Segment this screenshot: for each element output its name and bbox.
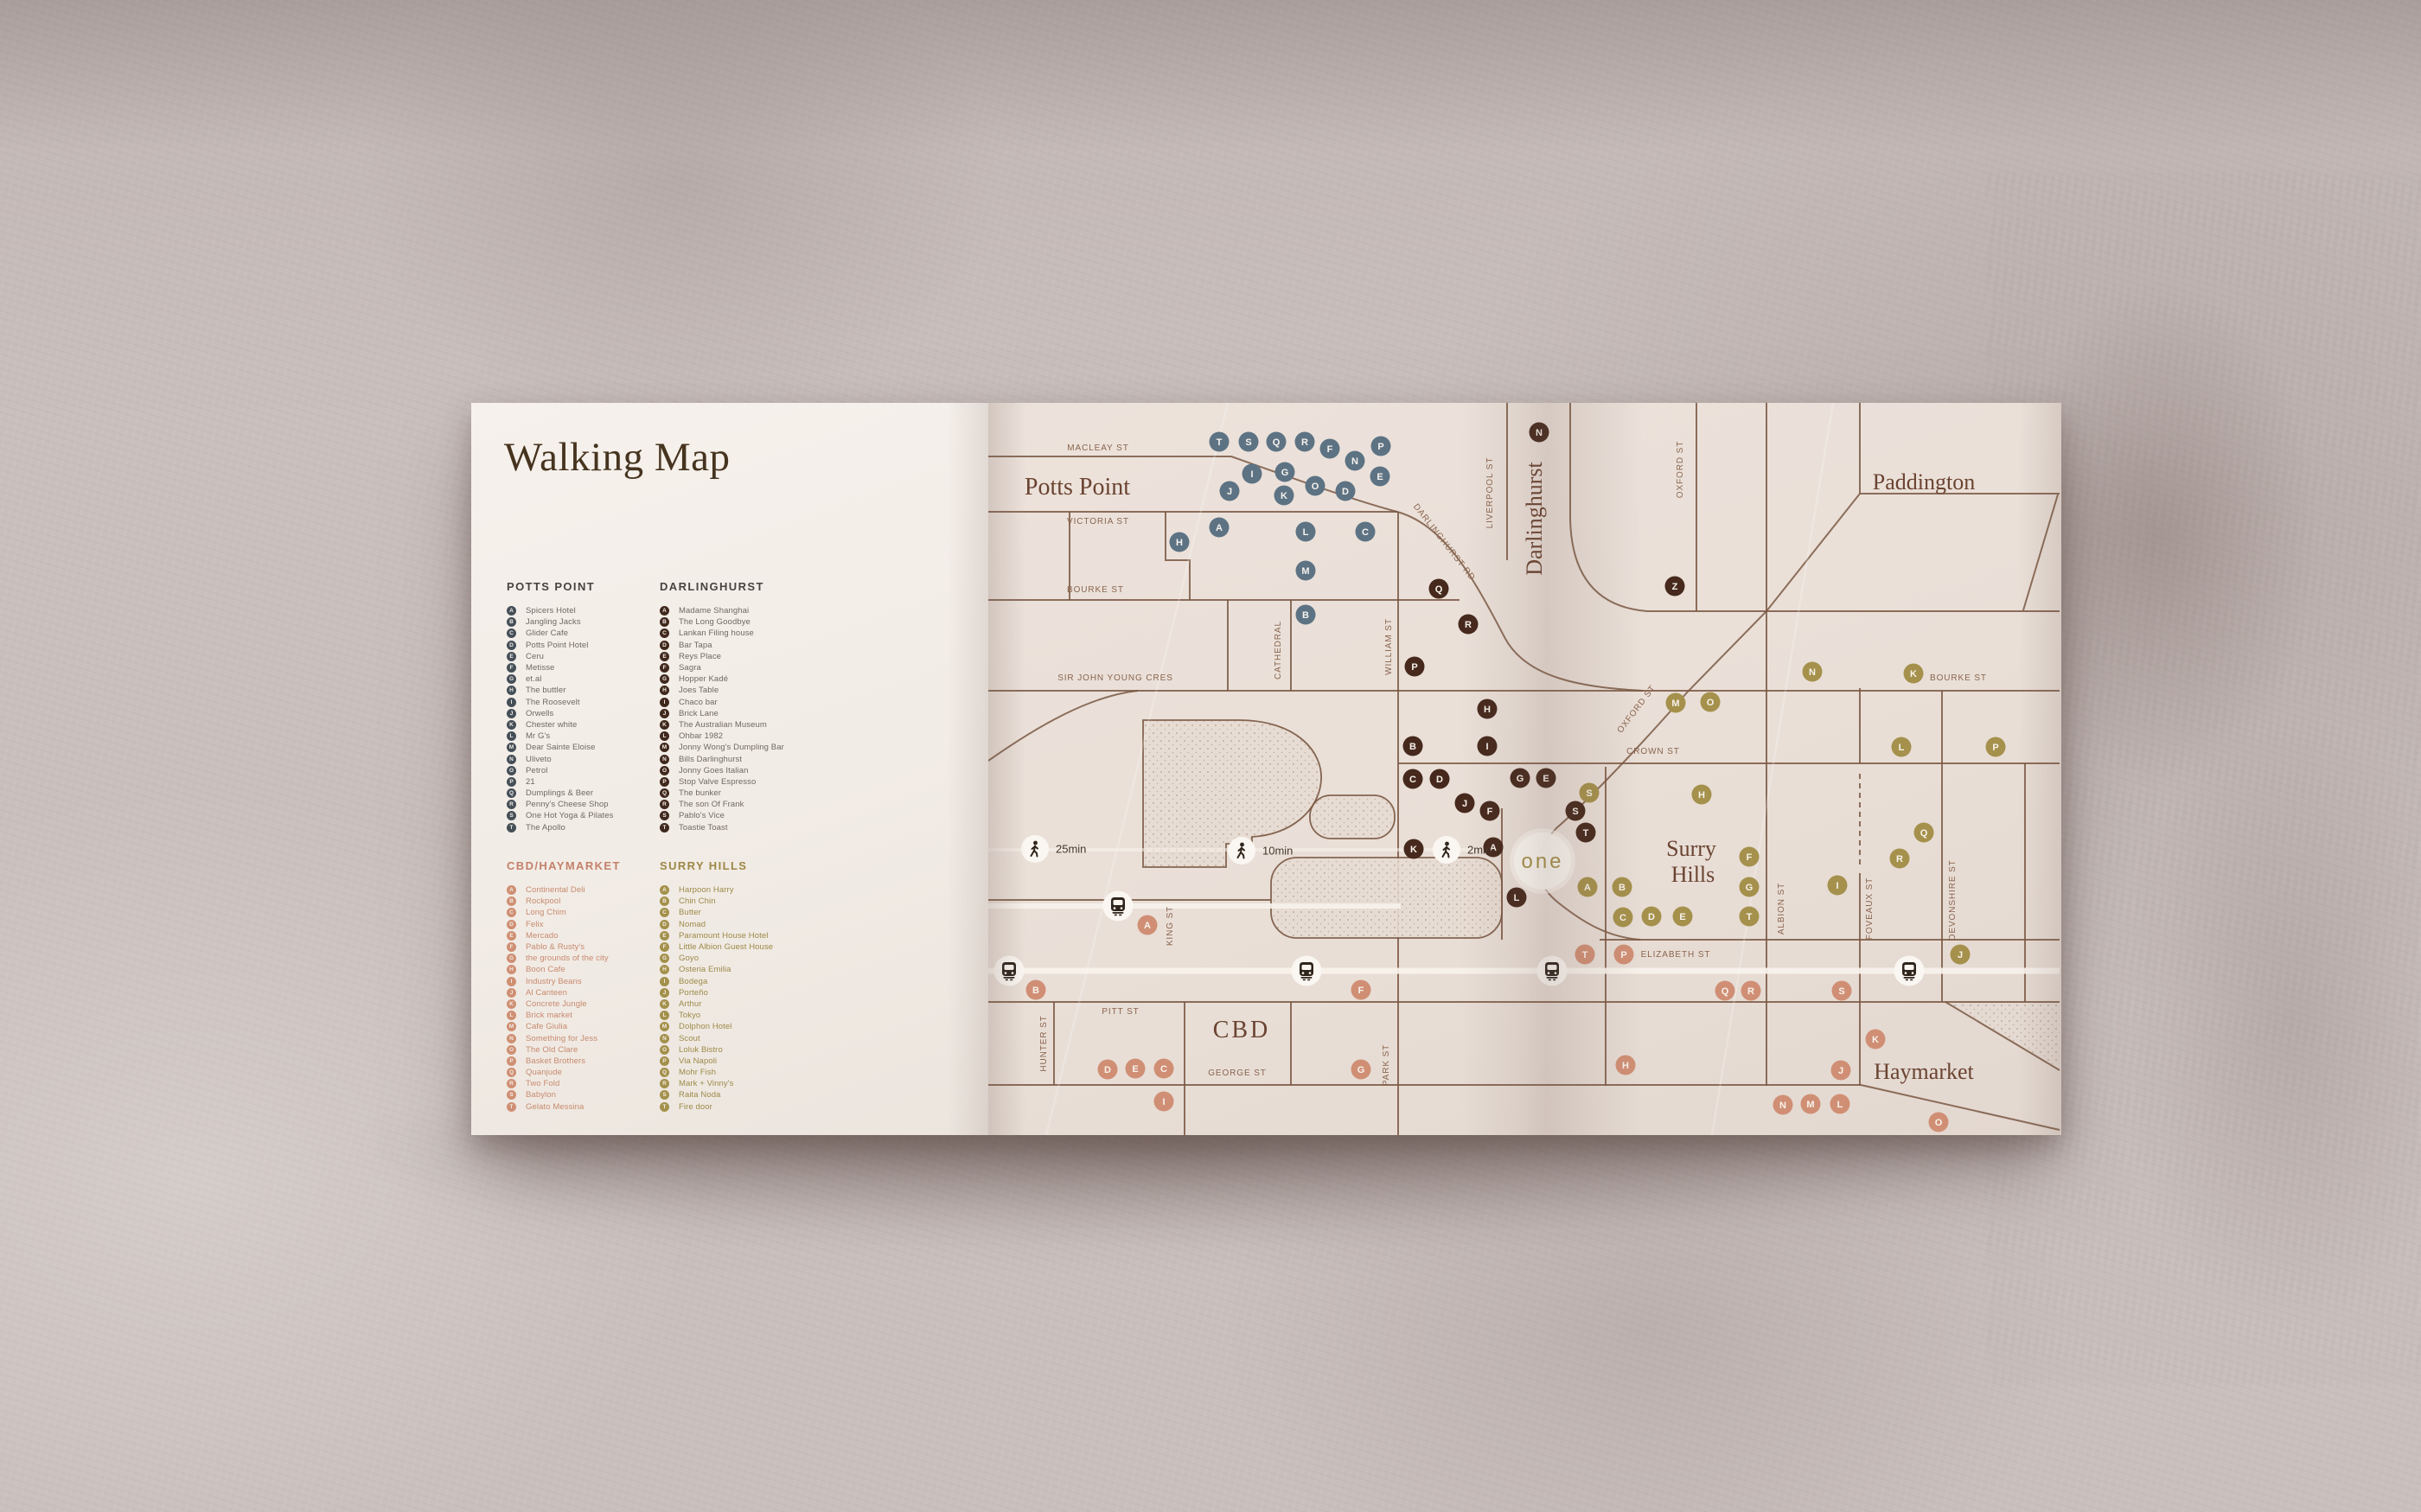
street-label: BOURKE ST — [1930, 673, 1987, 683]
legend-badge: Q — [660, 788, 669, 798]
svg-text:K: K — [1910, 669, 1917, 679]
svg-text:K: K — [1410, 845, 1417, 855]
legend-name: Continental Deli — [526, 885, 585, 895]
legend-badge: L — [507, 731, 516, 741]
legend-badge: T — [660, 1102, 669, 1112]
svg-text:D: D — [1342, 487, 1349, 497]
legend-badge: G — [660, 674, 669, 684]
legend-badge: O — [507, 1045, 516, 1055]
legend-name: Spicers Hotel — [526, 606, 576, 616]
legend-badge: F — [507, 942, 516, 952]
legend-badge: P — [660, 777, 669, 787]
legend-section-surry-hills: SURRY HILLSAHarpoon HarryBChin ChinCButt… — [660, 859, 814, 1113]
svg-text:N: N — [1779, 1101, 1786, 1111]
marker-cbd_haymarket-H: H — [1616, 1056, 1636, 1075]
legend-item: HThe buttler — [507, 685, 661, 696]
legend-item: EMercado — [507, 930, 661, 941]
marker-potts_point-N: N — [1345, 451, 1365, 471]
legend-item: HOsteria Emilia — [660, 964, 814, 975]
legend-name: Jangling Jacks — [526, 617, 581, 627]
legend-item: NUliveto — [507, 753, 661, 764]
legend-badge: D — [507, 641, 516, 650]
region-label: CBD — [1213, 1017, 1271, 1043]
legend-item: ECeru — [507, 651, 661, 662]
legend-item: IIndustry Beans — [507, 976, 661, 987]
svg-text:B: B — [1302, 610, 1309, 621]
marker-potts_point-L: L — [1296, 522, 1316, 542]
marker-potts_point-D: D — [1336, 482, 1356, 501]
legend-item: JAl Canteen — [507, 987, 661, 998]
svg-text:D: D — [1104, 1065, 1111, 1075]
one-logo-text: one — [1521, 850, 1563, 873]
legend-item: AMadame Shanghai — [660, 605, 814, 616]
legend-name: Industry Beans — [526, 977, 582, 986]
legend-badge: A — [660, 606, 669, 616]
legend-badge: Q — [507, 1068, 516, 1077]
street-label: GEORGE ST — [1208, 1069, 1267, 1078]
marker-cbd_haymarket-T: T — [1575, 945, 1595, 965]
legend-name: Brick Lane — [679, 709, 719, 718]
svg-text:Z: Z — [1672, 582, 1678, 592]
legend-name: Mercado — [526, 931, 559, 941]
legend-badge: N — [507, 755, 516, 764]
marker-darlinghurst-H: H — [1478, 699, 1498, 719]
legend-name: 21 — [526, 777, 535, 787]
legend-item: FMetisse — [507, 662, 661, 673]
marker-surry_hills-S: S — [1580, 783, 1600, 803]
legend-name: Toastie Toast — [679, 823, 728, 833]
legend-name: Harpoon Harry — [679, 885, 734, 895]
svg-text:L: L — [1514, 893, 1520, 903]
legend-badge: K — [507, 999, 516, 1009]
legend-badge: T — [507, 823, 516, 833]
svg-text:Q: Q — [1722, 986, 1729, 997]
street-label: DEVONSHIRE ST — [1948, 859, 1958, 940]
marker-potts_point-H: H — [1170, 533, 1190, 552]
legend-item: IThe Roosevelt — [507, 697, 661, 708]
legend-item: SBabylon — [507, 1089, 661, 1101]
legend-name: Metisse — [526, 663, 554, 673]
marker-cbd_haymarket-S: S — [1832, 981, 1852, 1001]
legend-name: Chaco bar — [679, 698, 718, 707]
legend-item: JBrick Lane — [660, 708, 814, 719]
marker-darlinghurst-I: I — [1478, 737, 1498, 756]
legend-item: RTwo Fold — [507, 1078, 661, 1089]
marker-cbd_haymarket-Q: Q — [1715, 981, 1735, 1001]
legend-badge: B — [507, 896, 516, 906]
marker-surry_hills-O: O — [1701, 692, 1721, 712]
legend-name: Tokyo — [679, 1011, 700, 1020]
legend-name: Madame Shanghai — [679, 606, 749, 616]
legend-badge: E — [660, 652, 669, 661]
legend-item: TThe Apollo — [507, 822, 661, 833]
svg-text:K: K — [1872, 1035, 1879, 1045]
marker-surry_hills-A: A — [1578, 877, 1598, 897]
legend-name: Mohr Fish — [679, 1068, 716, 1077]
svg-text:E: E — [1679, 912, 1685, 922]
street-label: LIVERPOOL ST — [1485, 457, 1495, 529]
marker-potts_point-J: J — [1220, 482, 1240, 501]
svg-text:O: O — [1312, 482, 1319, 492]
svg-text:C: C — [1619, 913, 1626, 923]
legend-name: Mr G's — [526, 731, 550, 741]
legend-name: Dear Sainte Eloise — [526, 743, 595, 752]
legend-badge: A — [507, 885, 516, 895]
legend-item: BRockpool — [507, 896, 661, 907]
legend-badge: M — [507, 1022, 516, 1031]
svg-text:F: F — [1358, 986, 1364, 996]
svg-text:L: L — [1303, 527, 1309, 538]
svg-text:T: T — [1747, 912, 1753, 922]
legend-badge: C — [660, 628, 669, 638]
legend-name: Pablo's Vice — [679, 811, 725, 820]
legend-badge: H — [507, 965, 516, 974]
legend-badge: B — [507, 617, 516, 627]
marker-cbd_haymarket-D: D — [1098, 1060, 1118, 1080]
parks — [1143, 720, 2060, 1069]
legend-item: KArthur — [660, 998, 814, 1010]
legend-item: JPorteño — [660, 987, 814, 998]
svg-text:C: C — [1160, 1064, 1167, 1075]
svg-text:D: D — [1648, 912, 1655, 922]
legend-badge: I — [660, 977, 669, 986]
wall-shadow-bottom — [259, 1124, 2075, 1349]
street-label: PARK ST — [1382, 1044, 1391, 1086]
legend-item: EParamount House Hotel — [660, 930, 814, 941]
marker-darlinghurst-Q: Q — [1429, 579, 1449, 599]
marker-darlinghurst-T: T — [1576, 823, 1596, 843]
marker-cbd_haymarket-I: I — [1154, 1092, 1174, 1112]
legend-item: ASpicers Hotel — [507, 605, 661, 616]
legend-badge: J — [507, 988, 516, 998]
marker-cbd_haymarket-R: R — [1741, 981, 1761, 1001]
svg-text:G: G — [1517, 774, 1524, 784]
legend-name: Bodega — [679, 977, 707, 986]
legend-name: Felix — [526, 920, 544, 929]
legend-badge: D — [660, 920, 669, 929]
legend-item: RPenny's Cheese Shop — [507, 799, 661, 810]
legend-item: BThe Long Goodbye — [660, 616, 814, 628]
train-station-icon — [1894, 956, 1925, 986]
street-label: OXFORD ST — [1676, 441, 1685, 498]
legend-item: IChaco bar — [660, 697, 814, 708]
legend-name: Hopper Kadé — [679, 674, 728, 684]
marker-surry_hills-R: R — [1890, 849, 1910, 869]
legend-name: Petrol — [526, 766, 547, 775]
legend-badge: C — [660, 908, 669, 917]
marker-surry_hills-I: I — [1828, 876, 1848, 896]
svg-text:P: P — [1377, 442, 1383, 452]
region-label: Darlinghurst — [1522, 462, 1547, 576]
legend-item: DPotts Point Hotel — [507, 640, 661, 651]
svg-text:I: I — [1162, 1097, 1165, 1107]
legend-item: AContinental Deli — [507, 884, 661, 896]
legend-badge: A — [507, 606, 516, 616]
svg-text:I: I — [1836, 881, 1838, 891]
legend-item: PBasket Brothers — [507, 1056, 661, 1067]
svg-text:L: L — [1837, 1100, 1843, 1110]
legend-name: The Apollo — [526, 823, 565, 833]
legend-badge: G — [660, 954, 669, 963]
svg-text:J: J — [1462, 799, 1467, 809]
marker-potts_point-R: R — [1295, 432, 1315, 452]
legend-name: Raita Noda — [679, 1090, 721, 1100]
marker-darlinghurst-P: P — [1405, 657, 1425, 677]
svg-text:R: R — [1747, 986, 1754, 997]
legend-badge: M — [660, 1022, 669, 1031]
legend-badge: H — [507, 686, 516, 695]
marker-surry_hills-B: B — [1613, 877, 1632, 897]
legend-item: P21 — [507, 776, 661, 788]
legend-badge: S — [660, 1090, 669, 1100]
svg-text:E: E — [1377, 472, 1383, 482]
legend-badge: M — [660, 743, 669, 752]
marker-darlinghurst-J: J — [1455, 794, 1475, 813]
legend-badge: N — [507, 1034, 516, 1043]
legend-badge: T — [660, 823, 669, 833]
legend-name: The bunker — [679, 788, 721, 798]
map-panel: Potts PointDarlinghurstPaddingtonSurryHi… — [988, 403, 2061, 1135]
legend-name: Pablo & Rusty's — [526, 942, 584, 952]
marker-cbd_haymarket-J: J — [1831, 1061, 1851, 1081]
legend-item: DNomad — [660, 919, 814, 930]
legend-name: Boon Cafe — [526, 965, 565, 974]
legend-badge: K — [660, 999, 669, 1009]
legend-badge: Q — [660, 1068, 669, 1077]
svg-text:F: F — [1487, 807, 1493, 817]
legend-item: OJonny Goes Italian — [660, 765, 814, 776]
svg-text:T: T — [1217, 437, 1223, 448]
marker-surry_hills-F: F — [1740, 847, 1760, 867]
legend-badge: C — [507, 908, 516, 917]
legend-item: LTokyo — [660, 1010, 814, 1021]
marker-surry_hills-D: D — [1642, 907, 1662, 927]
marker-cbd_haymarket-F: F — [1351, 980, 1371, 1000]
legend-badge: L — [660, 1011, 669, 1020]
svg-text:G: G — [1281, 468, 1289, 478]
marker-darlinghurst-G: G — [1511, 769, 1530, 788]
legend-name: Via Napoli — [679, 1056, 717, 1066]
legend-item: KThe Australian Museum — [660, 719, 814, 730]
legend-name: Concrete Jungle — [526, 999, 587, 1009]
marker-potts_point-K: K — [1274, 486, 1294, 506]
marker-surry_hills-C: C — [1613, 908, 1633, 928]
legend-badge: P — [507, 1056, 516, 1066]
svg-text:H: H — [1484, 705, 1491, 715]
legend-name: The Australian Museum — [679, 720, 767, 730]
svg-text:G: G — [1746, 883, 1753, 893]
legend-item: QThe bunker — [660, 788, 814, 799]
svg-text:A: A — [1216, 523, 1223, 533]
legend-name: Joes Table — [679, 686, 719, 695]
legend-name: Goyo — [679, 954, 699, 963]
train-station-icon — [994, 956, 1025, 986]
legend-name: Penny's Cheese Shop — [526, 800, 609, 809]
marker-darlinghurst-N: N — [1530, 423, 1549, 443]
legend-badge: D — [660, 641, 669, 650]
marker-potts_point-O: O — [1306, 476, 1325, 496]
legend-item: TToastie Toast — [660, 822, 814, 833]
legend-badge: H — [660, 965, 669, 974]
svg-text:F: F — [1747, 852, 1753, 863]
legend-name: Jonny Wong's Dumpling Bar — [679, 743, 784, 752]
marker-darlinghurst-B: B — [1403, 737, 1423, 756]
legend-badge: J — [660, 988, 669, 998]
svg-text:S: S — [1838, 986, 1844, 997]
legend-item: QMohr Fish — [660, 1067, 814, 1078]
svg-text:P: P — [1411, 662, 1417, 673]
street-label: WILLIAM ST — [1384, 618, 1394, 675]
legend-name: Little Albion Guest House — [679, 942, 773, 952]
svg-text:Q: Q — [1920, 828, 1928, 839]
marker-surry_hills-J: J — [1951, 945, 1971, 965]
legend-name: Bar Tapa — [679, 641, 712, 650]
legend-badge: E — [507, 931, 516, 941]
legend-badge: N — [660, 1034, 669, 1043]
legend-badge: H — [660, 686, 669, 695]
marker-surry_hills-G: G — [1740, 877, 1760, 897]
svg-text:J: J — [1958, 950, 1963, 960]
legend-item: PVia Napoli — [660, 1056, 814, 1067]
svg-text:R: R — [1465, 620, 1472, 630]
legend-name: Glider Cafe — [526, 628, 568, 638]
svg-text:Q: Q — [1435, 584, 1443, 595]
legend-name: Rockpool — [526, 896, 560, 906]
legend-name: Bills Darlinghurst — [679, 755, 742, 764]
svg-text:B: B — [1619, 883, 1626, 893]
legend-item: PStop Valve Espresso — [660, 776, 814, 788]
marker-potts_point-S: S — [1239, 432, 1259, 452]
legend-item: KChester white — [507, 719, 661, 730]
legend-item: LOhbar 1982 — [660, 730, 814, 742]
street-label: FOVEAUX ST — [1865, 877, 1875, 940]
svg-text:O: O — [1707, 698, 1715, 708]
svg-text:A: A — [1584, 883, 1591, 893]
marker-darlinghurst-S: S — [1566, 801, 1586, 821]
marker-darlinghurst-D: D — [1430, 769, 1450, 789]
svg-text:Q: Q — [1273, 437, 1281, 448]
legend-name: Sagra — [679, 663, 701, 673]
legend-name: Lankan Filing house — [679, 628, 754, 638]
marker-cbd_haymarket-G: G — [1351, 1060, 1371, 1080]
one-logo: one — [1510, 828, 1575, 894]
legend-name: Dumplings & Beer — [526, 788, 593, 798]
svg-text:S: S — [1572, 807, 1578, 817]
svg-text:E: E — [1132, 1064, 1138, 1075]
legend-badge: S — [660, 811, 669, 820]
legend-badge: K — [660, 720, 669, 730]
legend-name: Orwells — [526, 709, 553, 718]
legend-name: Ceru — [526, 652, 544, 661]
legend-badge: E — [507, 652, 516, 661]
legend-item: GGoyo — [660, 953, 814, 964]
legend-name: Reys Place — [679, 652, 721, 661]
legend-section-darlinghurst: DARLINGHURSTAMadame ShanghaiBThe Long Go… — [660, 580, 814, 833]
marker-potts_point-I: I — [1242, 464, 1262, 484]
street-label: HUNTER ST — [1039, 1015, 1049, 1071]
legend-badge: L — [660, 731, 669, 741]
legend-item: NSomething for Jess — [507, 1032, 661, 1043]
svg-text:P: P — [1620, 950, 1626, 960]
legend-item: CButter — [660, 907, 814, 918]
legend-item: HBoon Cafe — [507, 964, 661, 975]
street-label: KING ST — [1166, 906, 1175, 946]
svg-text:B: B — [1409, 742, 1416, 752]
legend-item: LMr G's — [507, 730, 661, 742]
street-label: ELIZABETH ST — [1641, 950, 1711, 960]
legend-badge: D — [507, 920, 516, 929]
marker-potts_point-P: P — [1371, 437, 1391, 456]
svg-text:G: G — [1357, 1065, 1365, 1075]
legend-item: HJoes Table — [660, 685, 814, 696]
legend-badge: P — [660, 1056, 669, 1066]
street-label: ALBION ST — [1777, 883, 1786, 935]
svg-text:R: R — [1896, 854, 1903, 864]
legend-name: One Hot Yoga & Pilates — [526, 811, 614, 820]
legend-name: The Roosevelt — [526, 698, 580, 707]
legend-badge: R — [660, 800, 669, 809]
legend-item: TFire door — [660, 1101, 814, 1113]
legend-badge: O — [507, 766, 516, 775]
marker-surry_hills-H: H — [1692, 785, 1712, 805]
legend-name: Scout — [679, 1034, 700, 1043]
marker-surry_hills-L: L — [1892, 737, 1912, 757]
walk-time-label: 25min — [1056, 843, 1086, 856]
legend-badge: F — [660, 663, 669, 673]
marker-surry_hills-N: N — [1803, 662, 1823, 682]
legend-item: Gthe grounds of the city — [507, 953, 661, 964]
legend-badge: R — [660, 1079, 669, 1088]
legend-badge: N — [660, 755, 669, 764]
legend-name: Long Chim — [526, 908, 566, 917]
legend-name: Ohbar 1982 — [679, 731, 723, 741]
legend-item: CLankan Filing house — [660, 628, 814, 639]
legend-name: the grounds of the city — [526, 954, 609, 963]
legend-section-cbd-haymarket: CBD/HAYMARKETAContinental DeliBRockpoolC… — [507, 859, 661, 1113]
legend-badge: E — [660, 931, 669, 941]
legend-name: Chin Chin — [679, 896, 716, 906]
legend-badge: F — [507, 663, 516, 673]
legend-badge: J — [660, 709, 669, 718]
legend-name: Two Fold — [526, 1079, 559, 1088]
legend-badge: O — [660, 766, 669, 775]
legend-item: IBodega — [660, 976, 814, 987]
walking-map: Potts PointDarlinghurstPaddingtonSurryHi… — [988, 403, 2061, 1135]
svg-text:M: M — [1671, 699, 1679, 709]
region-label: Surry — [1666, 836, 1716, 861]
legend-name: Loluk Bistro — [679, 1045, 723, 1055]
marker-surry_hills-E: E — [1673, 907, 1693, 927]
legend-badge: I — [507, 977, 516, 986]
marker-potts_point-Q: Q — [1267, 432, 1287, 452]
svg-text:A: A — [1144, 921, 1151, 931]
marker-surry_hills-T: T — [1740, 907, 1760, 927]
svg-text:O: O — [1935, 1118, 1943, 1128]
legend-badge: S — [507, 811, 516, 820]
legend-name: Jonny Goes Italian — [679, 766, 749, 775]
svg-text:M: M — [1806, 1100, 1814, 1110]
legend-name: Potts Point Hotel — [526, 641, 588, 650]
legend-badge: J — [507, 709, 516, 718]
street-label: PITT ST — [1102, 1007, 1139, 1017]
svg-text:I: I — [1250, 469, 1253, 480]
legend-item: CLong Chim — [507, 907, 661, 918]
legend-name: The son Of Frank — [679, 800, 744, 809]
legend-item: JOrwells — [507, 708, 661, 719]
legend-panel: Walking Map POTTS POINTASpicers HotelBJa… — [471, 403, 988, 1135]
legend-name: Quanjude — [526, 1068, 562, 1077]
legend-item: FLittle Albion Guest House — [660, 941, 814, 953]
